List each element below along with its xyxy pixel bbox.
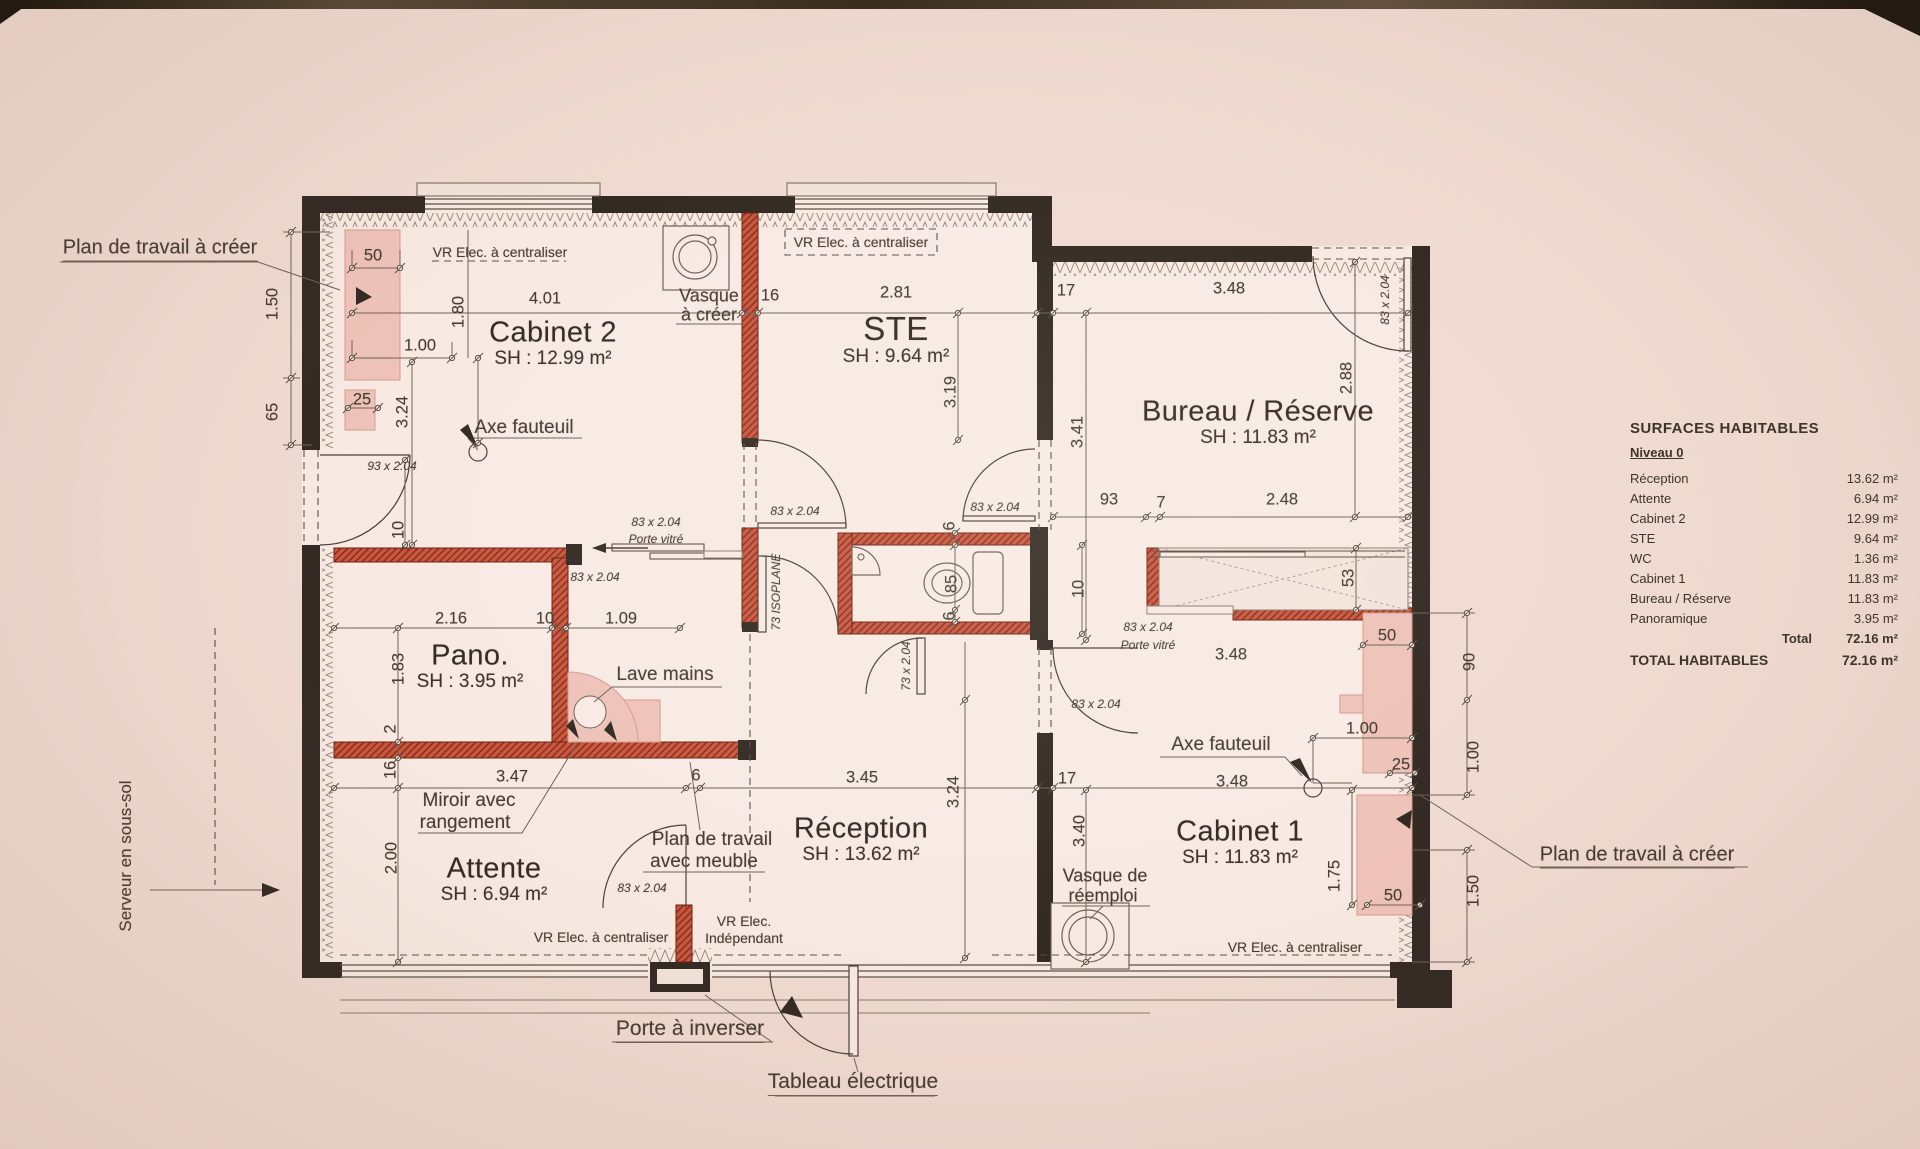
dim-label: 2.16 — [435, 610, 467, 629]
annotation-label: à créer — [681, 305, 737, 326]
surfaces-grand-total-row: TOTAL HABITABLES 72.16 m² — [1630, 650, 1898, 670]
annotation-label: réemploi — [1068, 886, 1137, 907]
door-size-label: 73 x 2.04 — [899, 641, 913, 690]
surface-row: Attente6.94 m² — [1630, 489, 1898, 509]
door-size-label: Porte vitré — [629, 532, 684, 546]
door-size-label: 83 x 2.04 — [570, 570, 619, 584]
door-size-label: 73 ISOPLANE — [769, 554, 783, 631]
dim-label: 4.01 — [529, 290, 561, 309]
annotation-label: VR Elec. à centraliser — [1228, 939, 1363, 955]
annotation-label: Plan de travail — [652, 829, 772, 851]
annotation-label: Plan de travail à créer — [1540, 844, 1735, 869]
dim-label: 1.09 — [605, 610, 637, 629]
dim-label: 1.80 — [450, 296, 469, 328]
surfaces-total-row: Total 72.16 m² — [1630, 629, 1898, 649]
surface-row: Bureau / Réserve11.83 m² — [1630, 589, 1898, 609]
annotation-label: Axe fauteuil — [1171, 734, 1270, 756]
surface-row-label: Réception — [1630, 469, 1689, 489]
dim-label: 1.00 — [1465, 741, 1484, 773]
dim-label: 6 — [941, 521, 960, 530]
room-name: Cabinet 2 — [489, 317, 617, 350]
dim-label: 1.75 — [1326, 860, 1345, 892]
room-name: Réception — [794, 813, 928, 846]
door-size-label: 83 x 2.04 — [770, 504, 819, 518]
annotation-label: VR Elec. à centraliser — [433, 244, 568, 260]
annotation-label: Vasque — [679, 286, 739, 307]
surface-row-label: WC — [1630, 549, 1652, 569]
surface-row: Cabinet 111.83 m² — [1630, 569, 1898, 589]
surfaces-table-rows: Réception13.62 m²Attente6.94 m²Cabinet 2… — [1630, 469, 1898, 629]
annotation-label: Plan de travail à créer — [63, 237, 258, 262]
dim-label: 25 — [353, 391, 371, 410]
room-area: SH : 12.99 m² — [494, 348, 611, 370]
annotation-label: rangement — [420, 812, 511, 834]
dim-label: 7 — [1156, 494, 1165, 513]
dim-label: 3.41 — [1069, 416, 1088, 448]
dim-label: 16 — [761, 287, 779, 306]
dim-label: 3.24 — [945, 776, 964, 808]
dim-label: 53 — [1340, 569, 1359, 587]
dim-label: 3.40 — [1071, 815, 1090, 847]
dim-label: 17 — [1057, 282, 1075, 301]
surfaces-table-level: Niveau 0 — [1630, 445, 1898, 460]
dim-label: 6 — [691, 767, 700, 786]
annotation-label: Axe fauteuil — [474, 417, 573, 439]
dim-label: 10 — [390, 521, 409, 539]
door-size-label: 83 x 2.04 — [1378, 275, 1392, 324]
annotation-label: avec meuble — [650, 851, 758, 873]
annotation-label: Miroir avec — [423, 790, 516, 812]
surfaces-table-title: SURFACES HABITABLES — [1630, 420, 1898, 437]
annotation-label: Lave mains — [616, 664, 713, 686]
annotation-label: Serveur en sous-sol — [116, 780, 136, 931]
total-value: 72.16 m² — [1846, 629, 1898, 649]
room-area: SH : 13.62 m² — [802, 844, 919, 866]
door-size-label: 83 x 2.04 — [617, 881, 666, 895]
dim-label: 50 — [1378, 627, 1396, 646]
dim-label: 2.81 — [880, 284, 912, 303]
dim-label: 50 — [364, 247, 382, 266]
photo-top-edge — [0, 0, 1920, 9]
dim-label: 2.48 — [1266, 491, 1298, 510]
dim-label: 50 — [1384, 887, 1402, 906]
surface-row-label: Panoramique — [1630, 609, 1707, 629]
dim-label: 3.24 — [394, 396, 413, 428]
dim-label: 10 — [536, 610, 554, 629]
surface-row-label: Attente — [1630, 489, 1671, 509]
annotation-label: VR Elec. à centraliser — [534, 929, 669, 945]
room-name: Attente — [447, 853, 542, 886]
dim-label: 3.19 — [942, 376, 961, 408]
dim-label: 93 — [1100, 491, 1118, 510]
dim-label: 3.48 — [1215, 646, 1247, 665]
surface-row-label: Cabinet 2 — [1630, 509, 1686, 529]
room-name: Bureau / Réserve — [1142, 396, 1374, 429]
surface-row: Panoramique3.95 m² — [1630, 609, 1898, 629]
room-area: SH : 11.83 m² — [1182, 847, 1298, 869]
dim-label: 25 — [1392, 756, 1410, 775]
dim-label: 1.83 — [390, 653, 409, 685]
door-size-label: 83 x 2.04 — [631, 515, 680, 529]
surface-row-value: 6.94 m² — [1854, 489, 1898, 509]
dim-label: 16 — [382, 761, 401, 779]
surface-row-value: 3.95 m² — [1854, 609, 1898, 629]
door-size-label: 83 x 2.04 — [970, 500, 1019, 514]
dim-label: 65 — [264, 403, 283, 421]
surface-row: WC1.36 m² — [1630, 549, 1898, 569]
surface-row: Cabinet 212.99 m² — [1630, 509, 1898, 529]
surface-row-value: 12.99 m² — [1847, 509, 1898, 529]
surfaces-table: SURFACES HABITABLES Niveau 0 Réception13… — [1630, 420, 1898, 670]
surface-row-value: 1.36 m² — [1854, 549, 1898, 569]
dim-label: 2.00 — [383, 842, 402, 874]
dim-label: 1.00 — [404, 337, 436, 356]
room-area: SH : 9.64 m² — [843, 346, 950, 368]
dim-label: 1.50 — [1465, 875, 1484, 907]
dim-label: 6 — [941, 611, 960, 620]
dim-label: 2.88 — [1338, 362, 1357, 394]
surface-row-label: STE — [1630, 529, 1655, 549]
dim-label: 3.48 — [1216, 773, 1248, 792]
grand-total-label: TOTAL HABITABLES — [1630, 650, 1768, 670]
surface-row: STE9.64 m² — [1630, 529, 1898, 549]
door-size-label: 93 x 2.04 — [367, 459, 416, 473]
dim-label: 17 — [1058, 770, 1076, 789]
dim-label: 1.00 — [1346, 720, 1378, 739]
surface-row: Réception13.62 m² — [1630, 469, 1898, 489]
room-name: STE — [863, 310, 928, 348]
annotation-label: VR Elec. à centraliser — [794, 234, 929, 250]
room-area: SH : 6.94 m² — [441, 884, 548, 906]
dim-label: 3.47 — [496, 768, 528, 787]
annotation-label: Tableau électrique — [768, 1070, 938, 1096]
surface-row-label: Cabinet 1 — [1630, 569, 1686, 589]
door-size-label: Porte vitré — [1121, 638, 1176, 652]
surface-row-label: Bureau / Réserve — [1630, 589, 1731, 609]
annotation-label: Porte à inverser — [616, 1017, 764, 1043]
scanned-floor-plan: Cabinet 2SH : 12.99 m²STESH : 9.64 m²Bur… — [0, 0, 1920, 1149]
grand-total-value: 72.16 m² — [1842, 650, 1898, 670]
room-name: Pano. — [431, 640, 509, 673]
room-area: SH : 11.83 m² — [1200, 427, 1316, 449]
surface-row-value: 11.83 m² — [1848, 589, 1898, 609]
dim-label: 10 — [1070, 580, 1089, 598]
annotation-label: Vasque de — [1063, 866, 1148, 887]
annotation-label: VR Elec. — [717, 913, 771, 929]
annotation-label: Indépendant — [705, 930, 783, 946]
total-label: Total — [1630, 629, 1846, 649]
room-area: SH : 3.95 m² — [417, 671, 524, 693]
door-size-label: 83 x 2.04 — [1123, 620, 1172, 634]
surface-row-value: 13.62 m² — [1847, 469, 1898, 489]
dim-label: 3.48 — [1213, 280, 1245, 299]
surface-row-value: 11.83 m² — [1848, 569, 1898, 589]
dim-label: 85 — [943, 575, 962, 593]
dim-label: 2 — [382, 724, 401, 733]
room-name: Cabinet 1 — [1176, 816, 1304, 849]
dim-label: 90 — [1461, 653, 1480, 671]
dim-label: 3.45 — [846, 769, 878, 788]
door-size-label: 83 x 2.04 — [1071, 697, 1120, 711]
dim-label: 1.50 — [264, 288, 283, 320]
surface-row-value: 9.64 m² — [1854, 529, 1898, 549]
